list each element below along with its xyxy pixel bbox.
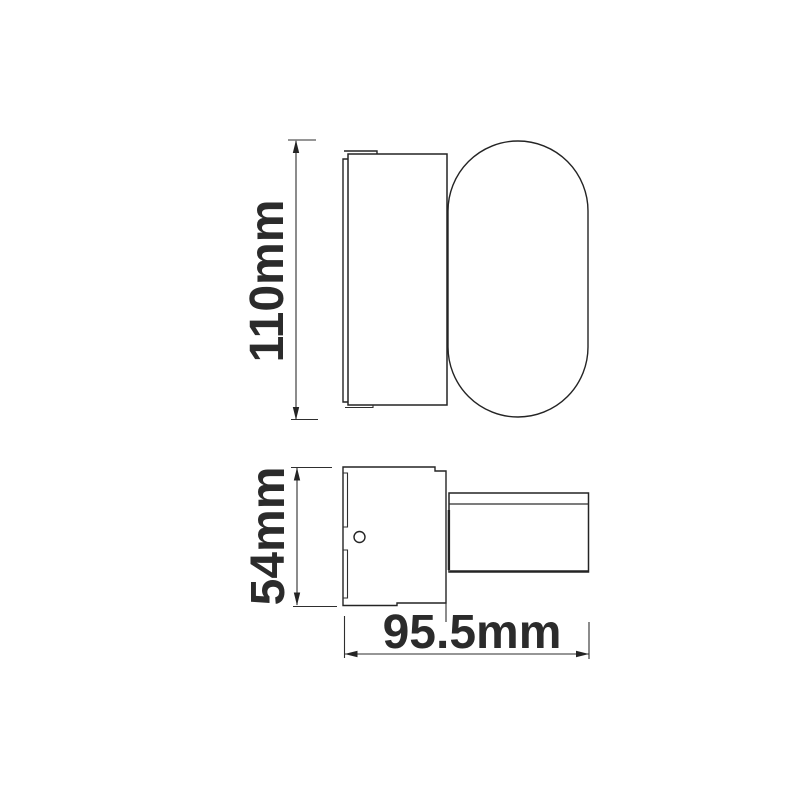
lamp-dimension-drawing: 110mm 54: [0, 0, 800, 800]
plan-view: [343, 467, 589, 622]
side-view: [343, 141, 588, 417]
dim-110-label: 110mm: [241, 200, 294, 363]
height-dimension-110mm: 110mm: [241, 140, 318, 420]
dim-95-label: 95.5mm: [383, 606, 562, 659]
depth-dimension-95-5mm: 95.5mm: [345, 606, 590, 659]
side-view-housing-body: [348, 154, 447, 405]
technical-drawing-canvas: 110mm 54: [0, 0, 800, 800]
dim-95-arrow-right-icon: [576, 651, 589, 657]
dim-110-arrow-down-icon: [293, 407, 299, 420]
plan-view-screw-hole: [354, 532, 365, 543]
dim-95-arrow-left-icon: [345, 651, 358, 657]
dim-54-label: 54mm: [242, 467, 295, 606]
plan-view-lamp-body: [449, 493, 589, 572]
dim-110-arrow-up-icon: [293, 140, 299, 153]
width-dimension-54mm: 54mm: [242, 467, 337, 607]
side-view-front-oval-lens: [448, 141, 588, 417]
